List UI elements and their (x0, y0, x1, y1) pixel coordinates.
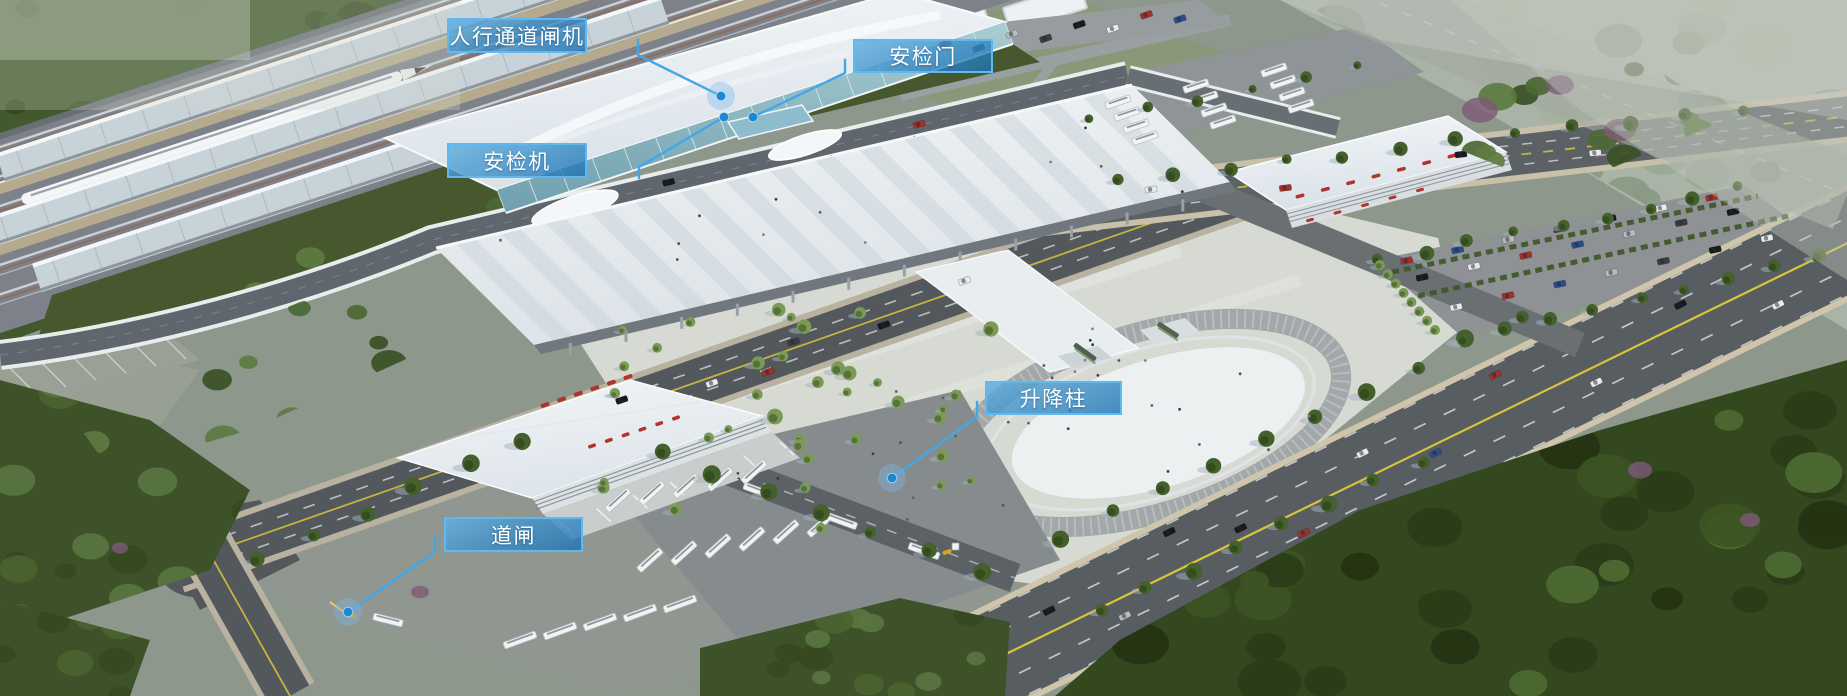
annotation-label-security-door[interactable]: 安检门 (853, 39, 993, 73)
annotation-label-pedestrian-channel-gate[interactable]: 人行通道闸机 (447, 18, 587, 53)
callout-labels: 人行通道闸机安检门安检机升降柱道闸 (0, 0, 1847, 696)
annotation-label-barrier-gate[interactable]: 道闸 (444, 517, 583, 552)
aerial-rendering: 人行通道闸机安检门安检机升降柱道闸 (0, 0, 1847, 696)
annotation-label-lifting-bollard[interactable]: 升降柱 (985, 381, 1122, 415)
annotation-label-security-machine[interactable]: 安检机 (447, 143, 587, 178)
